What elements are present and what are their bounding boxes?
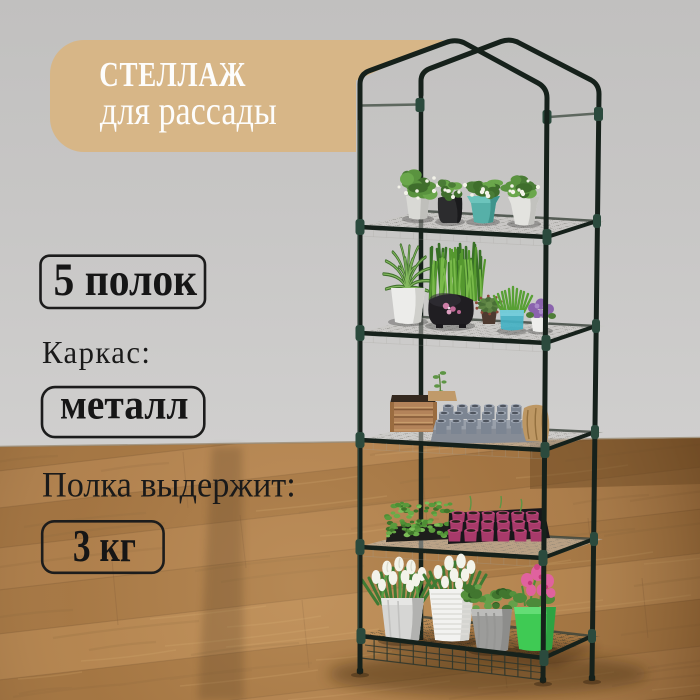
svg-text:для рассады: для рассады [100,90,277,134]
svg-text:Полка выдержит:: Полка выдержит: [42,465,296,505]
svg-text:металл: металл [60,381,188,427]
svg-text:5 полок: 5 полок [54,253,198,306]
svg-text:СТЕЛЛАЖ: СТЕЛЛАЖ [99,55,246,94]
svg-text:3 кг: 3 кг [73,519,136,571]
svg-text:Каркас:: Каркас: [42,334,151,370]
